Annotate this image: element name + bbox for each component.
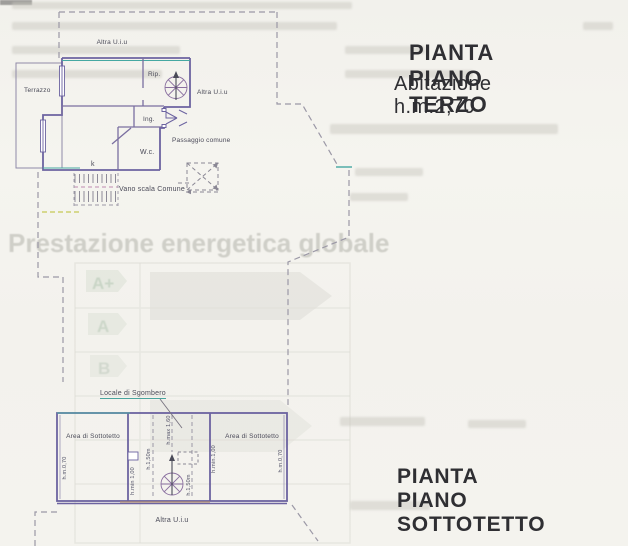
subtitle-abitazione-altezza: Abitazione h.m.2,70 [394,73,550,119]
label-altra-uiu-right: Altra U.i.u [197,89,228,96]
label-h-150-left: h.1,50m [146,448,152,469]
label-h-min-left: h.min 1,00 [130,467,136,495]
label-area-sottotetto-right: Area di Sottotetto [225,433,279,440]
title-pianta-piano-sottotetto: PIANTA PIANO SOTTOTETTO [397,465,551,537]
label-rip: Rip. [148,71,160,78]
label-vano-scala-comune: Vano scala Comune [119,186,185,193]
label-terrazzo: Terrazzo [24,87,51,94]
label-h-min-right: h.min.1,00 [211,445,217,473]
label-area-sottotetto-left: Area di Sottotetto [66,433,120,440]
scanned-floorplan-page: Prestazione energetica globale A+ A B [0,0,628,546]
label-h-150-right: h.1,50m [186,474,192,495]
label-h-right-wall: h.m.0,70 [278,449,284,472]
label-locale-di-sgombero: Locale di Sgombero [100,390,166,399]
label-k: k [91,161,95,168]
label-h-left-wall: h.m.0,70 [62,456,68,479]
label-altra-uiu-bottom: Altra U.i.u [156,517,189,524]
label-ing: Ing. [143,116,155,123]
label-passaggio-comune: Passaggio comune [172,137,231,144]
label-altra-uiu-top: Altra U.i.u [97,39,128,46]
label-h-max-center: h.max 1,60 [166,415,172,444]
label-wc: W.c. [140,149,154,156]
